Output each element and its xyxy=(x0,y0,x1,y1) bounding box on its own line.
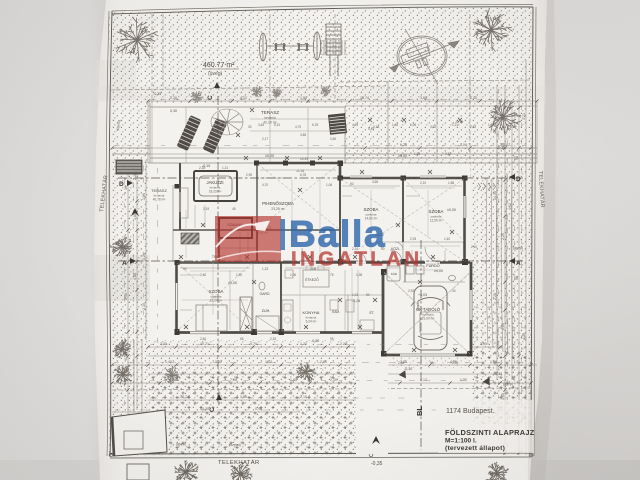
svg-text:INGATLAN: INGATLAN xyxy=(291,248,423,271)
